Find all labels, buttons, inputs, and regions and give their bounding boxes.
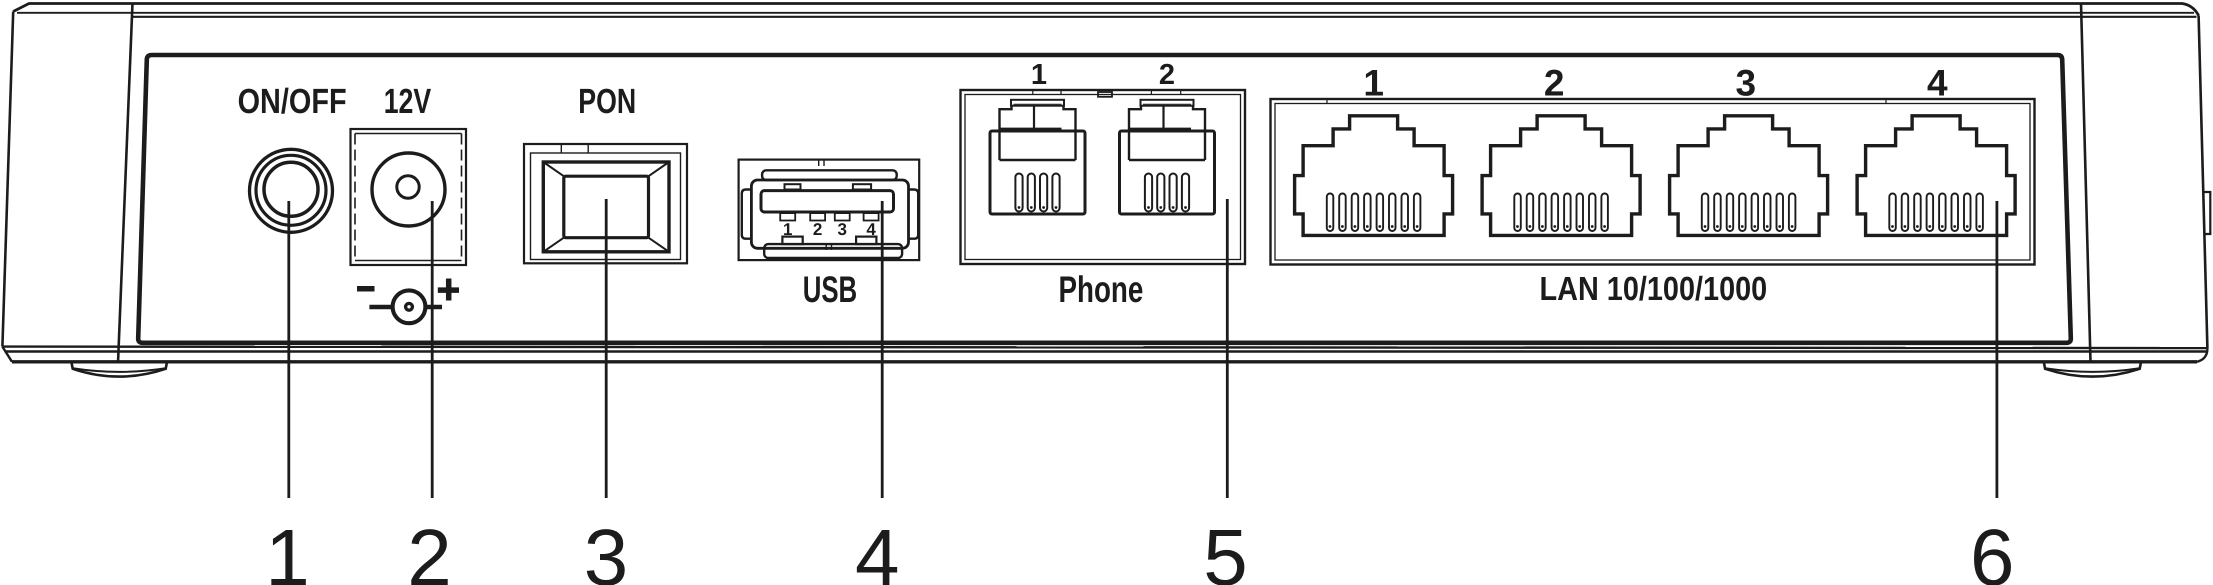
- svg-text:ON/OFF: ON/OFF: [238, 82, 347, 121]
- svg-text:3: 3: [584, 513, 629, 585]
- svg-text:12V: 12V: [384, 82, 432, 121]
- svg-text:3: 3: [837, 220, 846, 239]
- svg-text:PON: PON: [578, 82, 636, 121]
- svg-text:Phone: Phone: [1059, 269, 1144, 310]
- svg-text:3: 3: [1736, 63, 1757, 104]
- svg-text:2: 2: [813, 220, 822, 239]
- svg-text:1: 1: [1363, 63, 1384, 104]
- svg-text:4: 4: [1927, 63, 1948, 104]
- svg-text:6: 6: [1970, 513, 2015, 585]
- svg-text:2: 2: [407, 513, 452, 585]
- svg-text:2: 2: [1544, 63, 1565, 104]
- svg-text:1: 1: [265, 513, 310, 585]
- svg-text:2: 2: [1159, 59, 1175, 91]
- svg-text:5: 5: [1203, 513, 1248, 585]
- svg-text:1: 1: [1031, 59, 1047, 91]
- svg-text:4: 4: [855, 513, 900, 585]
- svg-text:USB: USB: [803, 269, 858, 310]
- svg-text:LAN 10/100/1000: LAN 10/100/1000: [1540, 271, 1768, 308]
